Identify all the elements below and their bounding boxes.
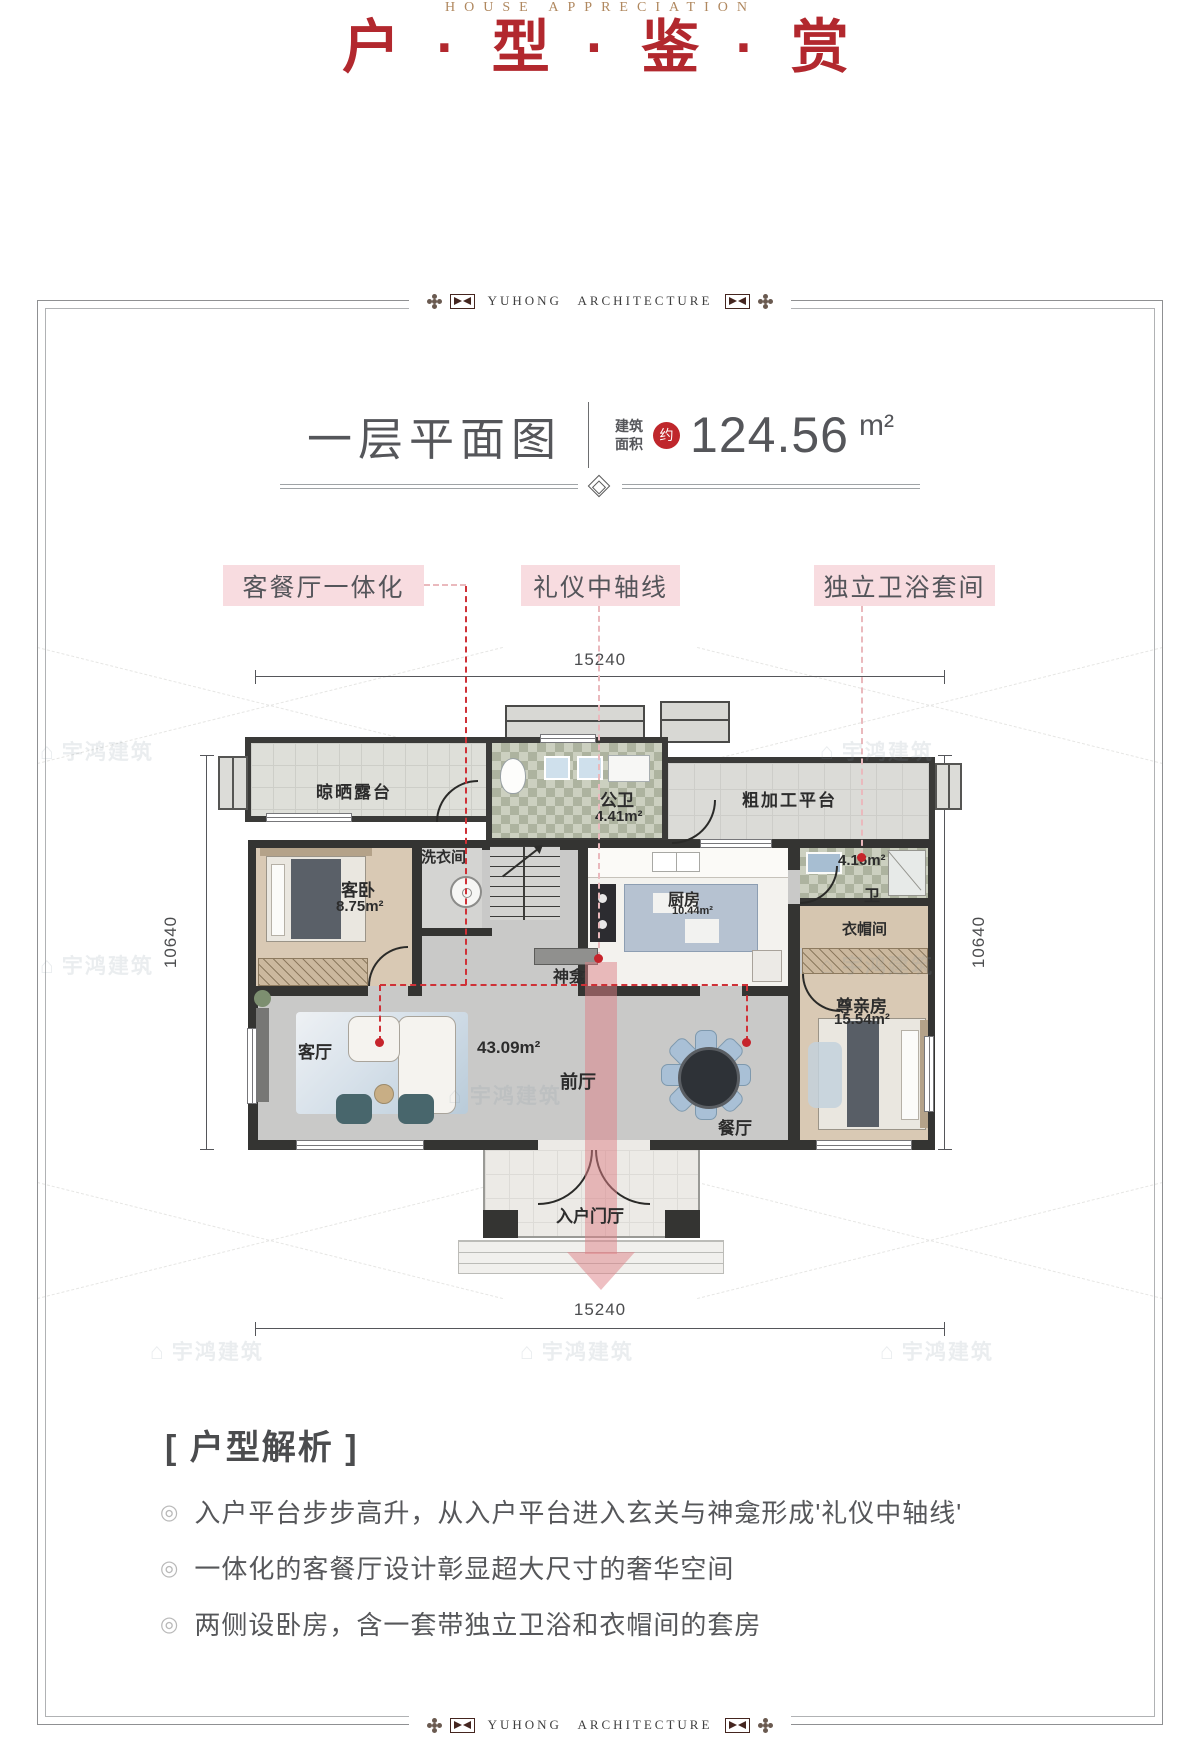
window xyxy=(540,734,596,743)
callout-leader-line xyxy=(861,606,863,856)
room-label-laundry: 洗衣间 xyxy=(421,846,466,867)
fridge-icon xyxy=(752,950,782,982)
watermark-text: 宇鸿建筑 xyxy=(62,736,154,766)
dimension-line-right xyxy=(944,755,945,1150)
bowtie-icon xyxy=(725,1718,750,1733)
watermark: ⌂宇鸿建筑 xyxy=(150,1336,264,1366)
sofa-chaise xyxy=(348,1016,400,1062)
room-area-guest-bedroom: 8.75m² xyxy=(336,898,384,915)
side-step-block xyxy=(218,756,248,810)
brand-text: YUHONG ARCHITECTURE xyxy=(488,1717,713,1733)
sink-icon xyxy=(544,756,570,780)
watermark-text: 宇鸿建筑 xyxy=(842,736,934,766)
analysis-heading: [ 户型解析 ] xyxy=(165,1420,359,1469)
watermark: ⌂宇鸿建筑 xyxy=(820,736,934,766)
window xyxy=(700,839,772,848)
callout-endpoint-dot xyxy=(742,1038,751,1047)
callout-endpoint-dot xyxy=(594,954,603,963)
callout-endpoint-dot xyxy=(857,853,866,862)
tv-console xyxy=(256,1008,269,1102)
room-label-cloakroom: 衣帽间 xyxy=(842,918,887,939)
bathroom-counter xyxy=(608,755,650,782)
room-label-terrace: 晾晒露台 xyxy=(316,778,392,803)
callout-leader-line xyxy=(379,985,381,1042)
frame-top-ornament-band: YUHONG ARCHITECTURE xyxy=(409,287,791,315)
dimension-line-left xyxy=(206,755,207,1150)
quatrefoil-icon xyxy=(432,1723,437,1728)
bowtie-icon xyxy=(725,294,750,309)
watermark-text: 宇鸿建筑 xyxy=(542,1336,634,1366)
bullet-icon: ◎ xyxy=(160,1608,178,1642)
wall xyxy=(788,840,800,870)
wardrobe xyxy=(258,958,368,986)
room-label-suite-bath: 卫 xyxy=(864,882,880,906)
armchair xyxy=(398,1094,434,1124)
watermark-text: 宇鸿建筑 xyxy=(902,1336,994,1366)
watermark: ⌂宇鸿建筑 xyxy=(40,950,154,980)
room-label-platform: 粗加工平台 xyxy=(742,786,837,811)
yuhong-logo-icon: ⌂ xyxy=(40,738,56,765)
room-area-public-bath: 4.41m² xyxy=(595,808,643,825)
bullet-text: 一体化的客餐厅设计彰显超大尺寸的奢华空间 xyxy=(194,1552,734,1586)
dimension-top: 15240 xyxy=(555,650,645,670)
dimension-line-bottom xyxy=(255,1328,945,1329)
bullet-icon: ◎ xyxy=(160,1496,178,1530)
watermark: ⌂宇鸿建筑 xyxy=(40,736,154,766)
analysis-bullet: ◎ 一体化的客餐厅设计彰显超大尺寸的奢华空间 xyxy=(160,1552,734,1586)
watermark: ⌂宇鸿建筑 xyxy=(820,950,934,980)
room-area-front-hall: 43.09m² xyxy=(477,1038,540,1058)
plan-header: 一层平面图 建筑 面积 约 124.56 m² xyxy=(0,402,1201,468)
watermark-text: 宇鸿建筑 xyxy=(62,950,154,980)
area-label-line1: 建筑 xyxy=(615,417,643,435)
room-label-front-hall: 前厅 xyxy=(560,1068,596,1094)
divider-line xyxy=(622,484,920,489)
bullet-icon: ◎ xyxy=(160,1552,178,1586)
plan-title: 一层平面图 xyxy=(307,403,562,468)
watermark: ⌂宇鸿建筑 xyxy=(448,1080,562,1110)
stove-icon xyxy=(590,884,616,942)
dining-chair xyxy=(725,1064,751,1086)
analysis-bullet: ◎ 两侧设卧房，含一套带独立卫浴和衣帽间的套房 xyxy=(160,1608,761,1642)
rug xyxy=(808,1042,842,1108)
analysis-bullet: ◎ 入户平台步步高升，从入户平台进入玄关与神龛形成'礼仪中轴线' xyxy=(160,1496,962,1530)
quatrefoil-icon xyxy=(432,299,437,304)
bed-headboard xyxy=(260,848,372,856)
dimension-bottom: 15240 xyxy=(555,1300,645,1320)
area-info: 建筑 面积 约 124.56 m² xyxy=(615,406,894,464)
kitchen-sink-icon xyxy=(652,852,700,872)
porch-pillar xyxy=(665,1210,700,1238)
callout-suite-bath: 独立卫浴套间 xyxy=(814,565,995,606)
wall xyxy=(412,928,492,936)
room-label-living: 客厅 xyxy=(298,1038,332,1063)
yuhong-logo-icon: ⌂ xyxy=(150,1338,166,1365)
callout-leader-line xyxy=(380,984,748,986)
room-area-elder-room: 15.54m² xyxy=(834,1011,890,1028)
watermark: ⌂宇鸿建筑 xyxy=(520,1336,634,1366)
callout-ceremonial-axis: 礼仪中轴线 xyxy=(521,565,680,606)
area-unit: m² xyxy=(859,409,894,443)
wall xyxy=(408,986,422,996)
approx-badge: 约 xyxy=(653,422,680,449)
yuhong-logo-icon: ⌂ xyxy=(448,1082,464,1109)
parapet-block xyxy=(660,701,730,743)
window xyxy=(924,1036,934,1112)
window xyxy=(266,813,352,822)
bowtie-icon xyxy=(450,294,475,309)
dimension-line-top xyxy=(255,676,945,677)
armchair xyxy=(336,1094,372,1124)
dining-table xyxy=(664,1033,748,1117)
window xyxy=(247,1028,257,1104)
callout-endpoint-dot xyxy=(375,1038,384,1047)
bullet-text: 两侧设卧房，含一套带独立卫浴和衣帽间的套房 xyxy=(194,1608,761,1642)
callout-leader-line xyxy=(598,606,600,958)
toilet-icon xyxy=(500,758,526,794)
callout-living-dining: 客餐厅一体化 xyxy=(223,565,424,606)
area-label-line2: 面积 xyxy=(615,435,643,453)
window xyxy=(816,1140,912,1150)
dining-chair xyxy=(661,1064,687,1086)
callout-leader-line xyxy=(465,586,467,985)
dimension-right: 10640 xyxy=(969,912,989,972)
yuhong-logo-icon: ⌂ xyxy=(40,952,56,979)
room-area-kitchen: 10.44m² xyxy=(672,905,713,917)
divider-line xyxy=(280,484,578,489)
floor-plan-poster: 户 · 型 · 鉴 · 赏 HOUSE APPRECIATION YUHONG … xyxy=(0,0,1201,1760)
brand-text: YUHONG ARCHITECTURE xyxy=(488,293,713,309)
watermark: ⌂宇鸿建筑 xyxy=(880,1336,994,1366)
dining-chair xyxy=(695,1094,717,1120)
yuhong-logo-icon: ⌂ xyxy=(820,738,836,765)
callout-leader-line xyxy=(424,584,466,586)
watermark-text: 宇鸿建筑 xyxy=(842,950,934,980)
porch-pillar xyxy=(483,1210,518,1238)
quatrefoil-icon xyxy=(763,1723,768,1728)
plant-icon xyxy=(254,990,271,1007)
wall xyxy=(788,904,800,1150)
area-value: 124.56 xyxy=(690,406,849,464)
yuhong-logo-icon: ⌂ xyxy=(880,1338,896,1365)
coffee-table xyxy=(374,1084,394,1104)
watermark-text: 宇鸿建筑 xyxy=(470,1080,562,1110)
bowtie-icon xyxy=(450,1718,475,1733)
dimension-left: 10640 xyxy=(161,912,181,972)
window xyxy=(296,1140,424,1150)
watermark-text: 宇鸿建筑 xyxy=(172,1336,264,1366)
frame-bottom-ornament-band: YUHONG ARCHITECTURE xyxy=(409,1711,791,1739)
callout-leader-line xyxy=(746,985,748,1042)
side-step-block xyxy=(935,763,962,810)
bullet-text: 入户平台步步高升，从入户平台进入玄关与神龛形成'礼仪中轴线' xyxy=(194,1496,962,1530)
dining-chair xyxy=(695,1030,717,1056)
room-label-entry: 入户门厅 xyxy=(556,1202,624,1227)
shower-icon xyxy=(888,850,926,896)
yuhong-logo-icon: ⌂ xyxy=(820,952,836,979)
page-subtitle: HOUSE APPRECIATION xyxy=(0,0,1201,16)
vertical-separator xyxy=(588,402,589,468)
yuhong-logo-icon: ⌂ xyxy=(520,1338,536,1365)
quatrefoil-icon xyxy=(763,299,768,304)
room-label-dining: 餐厅 xyxy=(718,1114,752,1139)
axis-arrow-head xyxy=(567,1252,635,1290)
area-label: 建筑 面积 xyxy=(615,417,643,453)
